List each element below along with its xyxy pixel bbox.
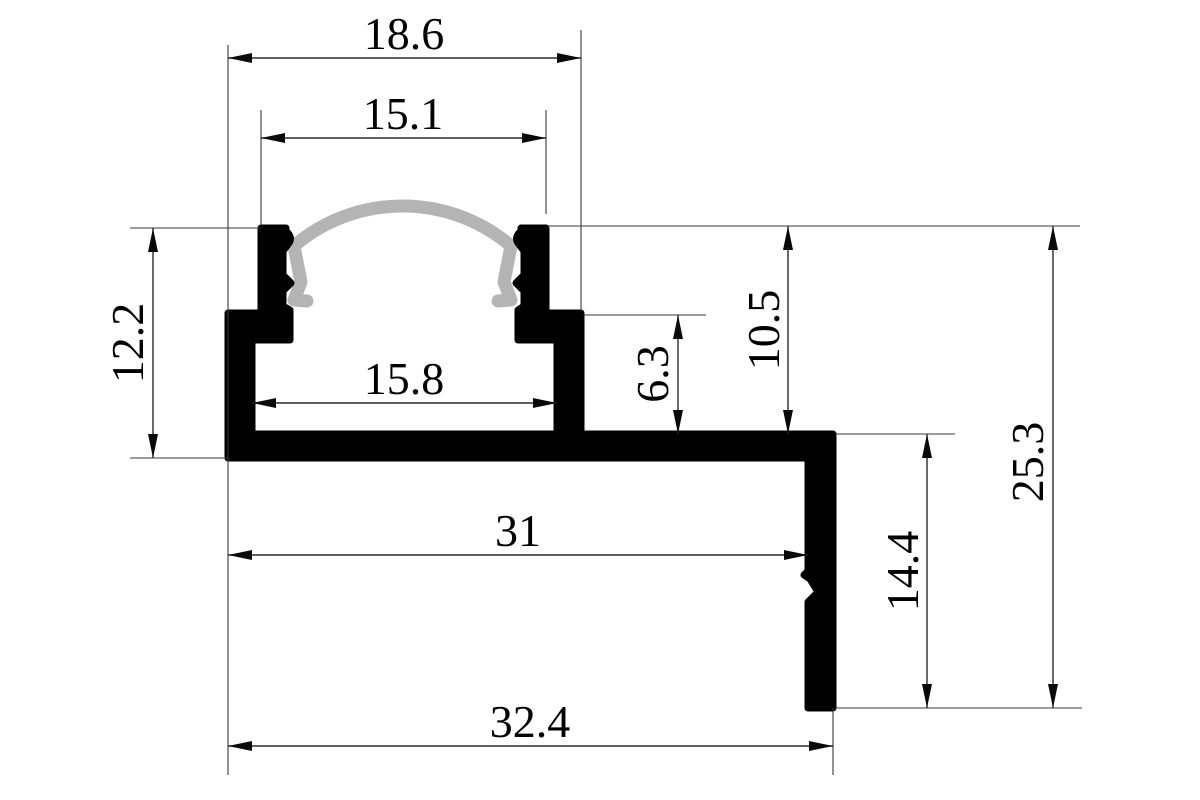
dimension-top-outer-width: 18.6: [228, 8, 581, 63]
diffuser-dome-arc: [294, 206, 511, 246]
arrowhead-top: [783, 226, 793, 250]
dimension-label: 14.4: [877, 531, 928, 612]
dimension-label: 15.8: [364, 353, 445, 404]
dimension-step-height: 6.3: [627, 315, 683, 434]
arrowhead-top: [673, 315, 683, 339]
dimension-overall-height: 25.3: [1002, 226, 1058, 708]
dimension-label: 15.1: [363, 88, 444, 139]
dimension-leg-height: 14.4: [877, 434, 932, 708]
dimension-label: 12.2: [102, 303, 153, 384]
arrowhead-bottom: [922, 684, 932, 708]
arrowhead-left: [261, 133, 285, 143]
arrowhead-right: [522, 133, 546, 143]
arrowhead-left: [252, 398, 276, 408]
diffuser-cover: [294, 206, 511, 301]
dimension-label: 25.3: [1002, 422, 1053, 503]
arrowhead-right: [809, 741, 833, 751]
arrowhead-left: [228, 741, 252, 751]
dimension-base-width: 31: [228, 505, 808, 560]
arrowhead-bottom: [1048, 684, 1058, 708]
dimension-upper-channel-height: 10.5: [738, 226, 793, 434]
diffuser-left-leg: [294, 246, 307, 301]
arrowhead-bottom: [673, 410, 683, 434]
dimension-top-wall-width: 15.1: [261, 88, 546, 143]
arrowhead-top: [148, 228, 158, 252]
arrowhead-bottom: [148, 434, 158, 458]
dimension-label: 10.5: [738, 290, 789, 371]
arrowhead-right: [784, 550, 808, 560]
dimension-label: 18.6: [364, 8, 445, 59]
arrowhead-right: [533, 398, 557, 408]
arrowhead-top: [1048, 226, 1058, 250]
diffuser-right-leg: [498, 246, 511, 301]
dimension-cavity-width: 15.8: [252, 353, 557, 408]
arrowhead-left: [228, 550, 252, 560]
dimension-label: 32.4: [490, 696, 571, 747]
arrowhead-left: [228, 53, 252, 63]
arrowhead-bottom: [783, 410, 793, 434]
arrowhead-top: [922, 434, 932, 458]
dimension-overall-width: 32.4: [228, 696, 833, 751]
technical-drawing-canvas: 18.6 15.1 15.8 31 32.4 12.2: [0, 0, 1200, 800]
arrowhead-right: [557, 53, 581, 63]
dimension-label: 6.3: [627, 345, 678, 403]
dimension-label: 31: [495, 505, 541, 556]
dimension-left-height: 12.2: [102, 228, 158, 458]
profile-cross-section-drawing: 18.6 15.1 15.8 31 32.4 12.2: [0, 0, 1200, 800]
